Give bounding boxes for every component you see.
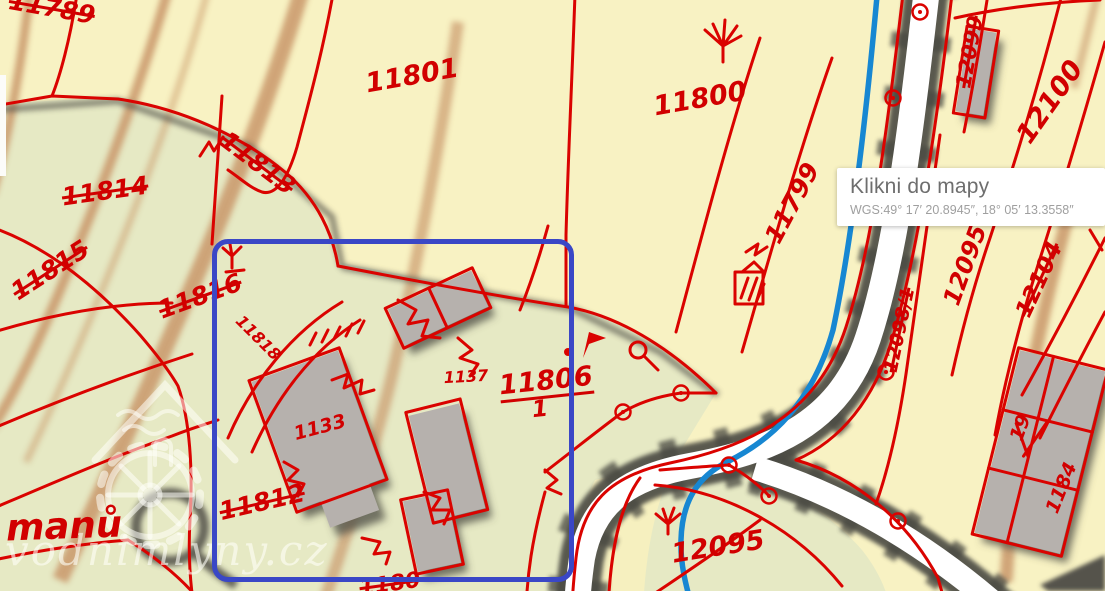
tooltip-coordinates: WGS:49° 17′ 20.8945″, 18° 05′ 13.3558″ [850, 203, 1092, 217]
selection-rectangle [212, 239, 574, 582]
map-edge-artifact [0, 75, 6, 176]
map-tooltip: Klikni do mapy WGS:49° 17′ 20.8945″, 18°… [837, 168, 1105, 226]
tooltip-title: Klikni do mapy [850, 175, 1092, 199]
cadastral-map-viewport[interactable]: vodnimlyny.cz 11789118011180011813118141… [0, 0, 1105, 591]
